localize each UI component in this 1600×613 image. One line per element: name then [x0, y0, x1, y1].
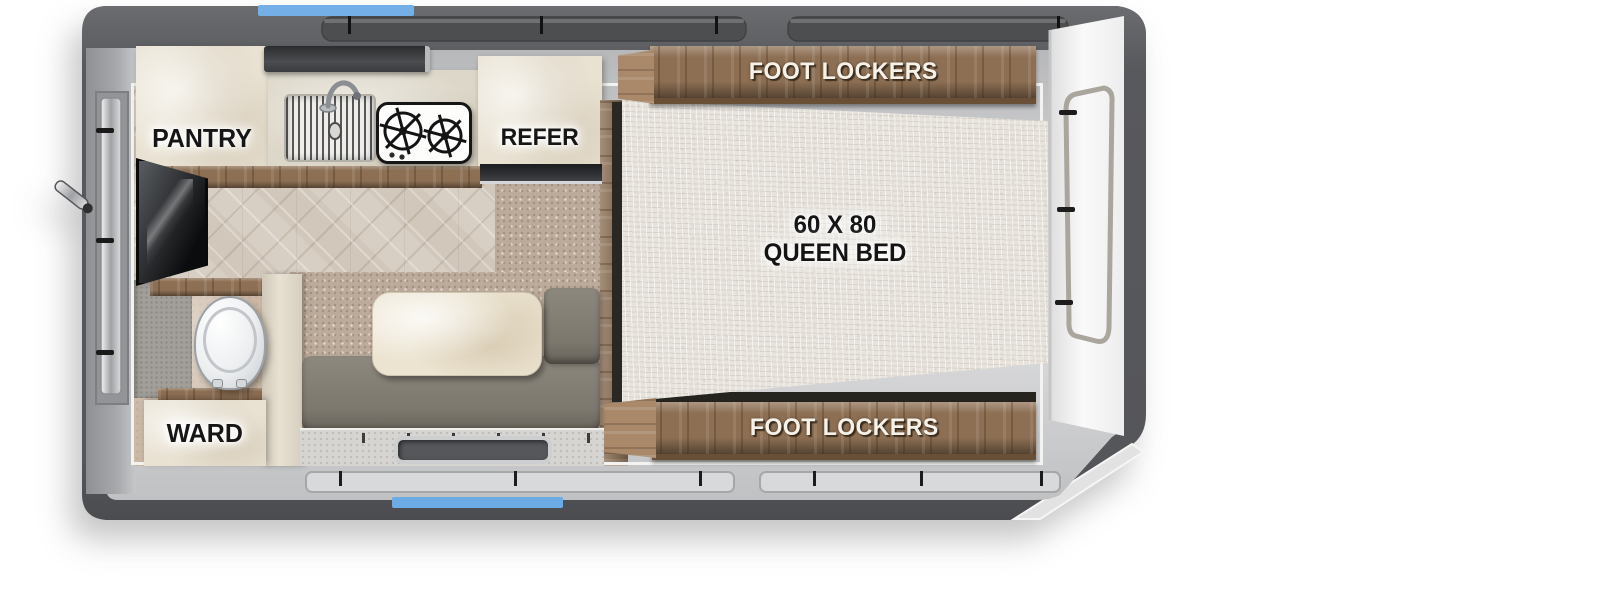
- toilet-seat: [203, 307, 257, 373]
- refer-label: REFER: [501, 124, 579, 152]
- foot-lockers-bottom-endcap: [604, 398, 656, 458]
- foot-lockers-top-endcap: [618, 50, 654, 104]
- faucet-icon: [316, 64, 368, 114]
- queen-bed: 60 X 80 QUEEN BED: [622, 100, 1048, 402]
- tv: [136, 158, 208, 286]
- bathroom-wall: [262, 274, 302, 466]
- bed-label: 60 X 80 QUEEN BED: [764, 211, 907, 267]
- bed-size-label: 60 X 80: [764, 211, 907, 239]
- stove-burners-icon: [379, 105, 469, 161]
- wardrobe: WARD: [144, 400, 266, 466]
- roof-channels: [322, 16, 1068, 41]
- foot-lockers-bottom-label: FOOT LOCKERS: [750, 414, 939, 442]
- wet-bath-pan: [134, 280, 192, 398]
- dinette-cushion: [544, 288, 600, 364]
- entry-step: [394, 436, 552, 464]
- rear-hatch-trim: [101, 98, 121, 394]
- foot-lockers-top-label: FOOT LOCKERS: [749, 58, 938, 86]
- foot-lockers-bottom: FOOT LOCKERS: [652, 402, 1036, 460]
- dinette-table: [372, 292, 542, 376]
- floorplan-canvas: PANTRY REFER: [0, 0, 1600, 613]
- refrigerator-door-edge: [480, 164, 602, 184]
- rear-wall: [86, 48, 136, 494]
- refrigerator: REFER: [478, 56, 602, 168]
- blue-accent-strip-bottom: [392, 497, 563, 508]
- toilet-hinge: [236, 379, 247, 388]
- pantry-cabinet: PANTRY: [136, 46, 268, 172]
- front-cap: [1050, 16, 1124, 436]
- bath-threshold-top: [150, 278, 268, 296]
- toilet-hinge: [212, 379, 223, 388]
- bottom-channels: [306, 471, 1060, 492]
- bed-type-label: QUEEN BED: [764, 239, 907, 267]
- wardrobe-label: WARD: [167, 418, 243, 449]
- blue-accent-strip-top: [258, 5, 414, 16]
- foot-lockers-top: FOOT LOCKERS: [650, 46, 1036, 104]
- two-burner-stove: [376, 102, 472, 164]
- pantry-label: PANTRY: [152, 123, 252, 154]
- toilet: [194, 296, 268, 394]
